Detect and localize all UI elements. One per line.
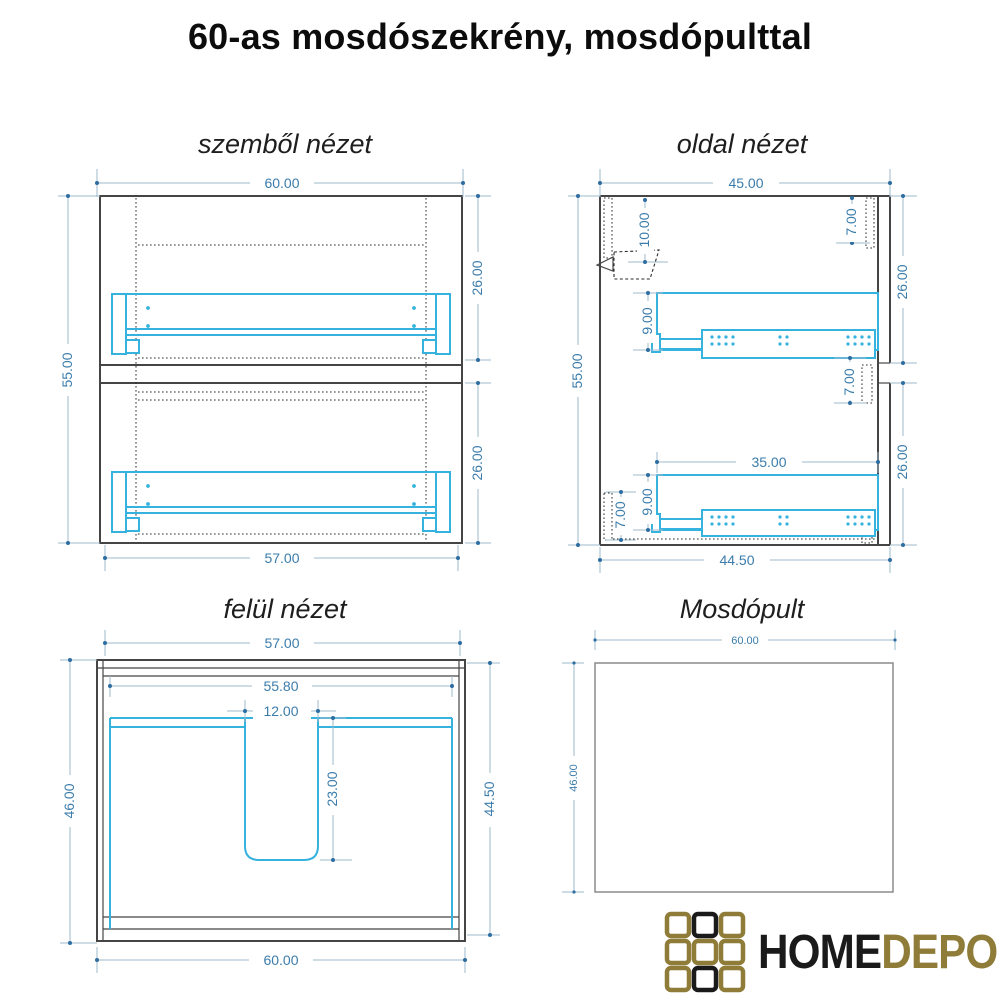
side-dim-depth-bottom: 44.50 xyxy=(719,552,754,568)
top-view: felül nézet 57.00 xyxy=(55,590,545,990)
front-dim-width-top: 60.00 xyxy=(264,175,299,191)
top-dim-cutout-depth: 23.00 xyxy=(324,771,340,806)
side-dim-mid-rail: 7.00 xyxy=(841,368,857,395)
side-lower-drawer xyxy=(652,475,878,536)
counter-view-title: Mosdópult xyxy=(680,594,806,624)
top-dim-inner-width: 55.80 xyxy=(263,678,298,694)
side-view: oldal nézet xyxy=(545,122,1000,580)
counter-dim-depth-left: 46.00 xyxy=(568,764,580,792)
counter-view: Mosdópult 60.00 46.00 xyxy=(545,590,1000,920)
homedepo-grid-icon xyxy=(664,911,746,993)
top-view-title: felül nézet xyxy=(223,594,348,624)
side-dim-lower-drawer-side: 9.00 xyxy=(639,488,655,515)
front-cabinet xyxy=(100,196,462,543)
technical-drawing-page: 60-as mosdószekrény, mosdópulttal szembő… xyxy=(0,0,1000,1000)
top-dim-depth-right: 44.50 xyxy=(481,781,497,816)
side-hanging-bracket xyxy=(597,250,659,279)
side-dim-lower-front: 26.00 xyxy=(894,444,910,479)
counter-dim-width-top: 60.00 xyxy=(731,635,759,647)
side-dim-depth-top: 45.00 xyxy=(728,175,763,191)
front-dim-upper-drawer: 26.00 xyxy=(469,260,485,295)
homedepo-logo: HOMEDEPO xyxy=(664,911,1000,993)
top-dim-cutout-width: 12.00 xyxy=(263,703,298,719)
side-view-title: oldal nézet xyxy=(677,129,809,159)
top-sink-cutout xyxy=(245,718,318,860)
side-dim-top-rail: 7.00 xyxy=(843,208,859,235)
top-dim-width-top: 57.00 xyxy=(264,635,299,651)
logo-text-depo: DEPO xyxy=(881,925,997,980)
top-dim-width-bottom: 60.00 xyxy=(263,952,298,968)
logo-text-home: HOME xyxy=(758,925,881,980)
side-dim-upper-front: 26.00 xyxy=(894,264,910,299)
counter-outline xyxy=(595,663,893,892)
side-upper-drawer xyxy=(652,293,878,358)
page-title: 60-as mosdószekrény, mosdópulttal xyxy=(0,16,1000,58)
front-dim-height-left: 55.00 xyxy=(59,352,75,387)
top-dim-depth-left: 46.00 xyxy=(61,783,77,818)
front-dim-lower-drawer: 26.00 xyxy=(469,445,485,480)
logo-wordmark: HOMEDEPO xyxy=(758,925,997,980)
side-dim-back-rail: 7.00 xyxy=(612,501,628,528)
side-dim-hang-bracket: 10.00 xyxy=(636,212,652,247)
front-view-title: szemből nézet xyxy=(198,129,374,159)
side-dim-height-left: 55.00 xyxy=(569,353,585,388)
front-dim-width-bottom: 57.00 xyxy=(264,550,299,566)
side-dim-slide-length: 35.00 xyxy=(751,454,786,470)
side-dim-upper-drawer-side: 9.00 xyxy=(639,307,655,334)
front-view: szemből nézet xyxy=(55,122,520,580)
